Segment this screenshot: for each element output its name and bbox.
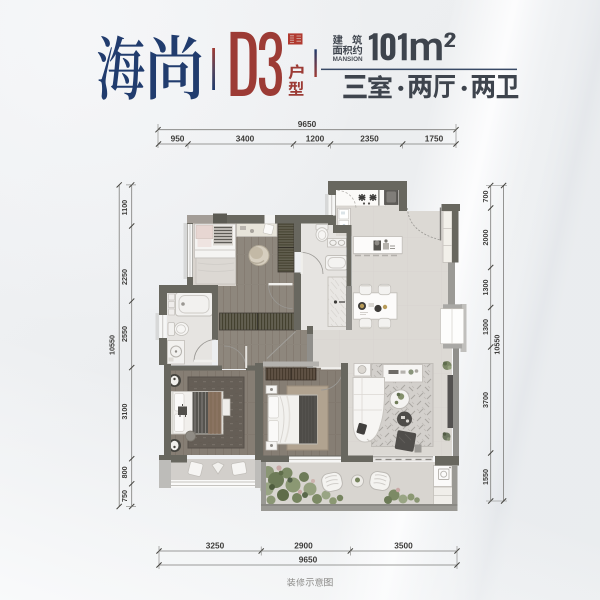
svg-text:10550: 10550 bbox=[108, 335, 117, 355]
svg-text:3700: 3700 bbox=[481, 392, 490, 408]
svg-text:2550: 2550 bbox=[120, 326, 129, 342]
svg-text:9650: 9650 bbox=[299, 554, 318, 564]
svg-text:1100: 1100 bbox=[120, 200, 129, 216]
svg-text:2350: 2350 bbox=[360, 133, 379, 143]
svg-text:750: 750 bbox=[120, 490, 129, 502]
svg-text:3400: 3400 bbox=[236, 133, 255, 143]
svg-text:1300: 1300 bbox=[481, 280, 490, 296]
svg-text:3500: 3500 bbox=[394, 540, 413, 550]
svg-text:1550: 1550 bbox=[481, 469, 490, 485]
svg-text:3250: 3250 bbox=[206, 540, 225, 550]
svg-text:9650: 9650 bbox=[298, 119, 317, 129]
svg-text:10550: 10550 bbox=[493, 335, 502, 355]
svg-text:1200: 1200 bbox=[306, 133, 325, 143]
svg-text:2900: 2900 bbox=[294, 540, 313, 550]
svg-text:2000: 2000 bbox=[481, 230, 490, 246]
svg-text:1750: 1750 bbox=[425, 133, 444, 143]
svg-text:2250: 2250 bbox=[120, 269, 129, 285]
svg-text:MANSION: MANSION bbox=[333, 56, 364, 63]
svg-text:1300: 1300 bbox=[481, 319, 490, 335]
svg-text:950: 950 bbox=[171, 133, 185, 143]
svg-text:3100: 3100 bbox=[120, 404, 129, 420]
svg-text:800: 800 bbox=[120, 466, 129, 478]
svg-text:700: 700 bbox=[481, 191, 490, 203]
